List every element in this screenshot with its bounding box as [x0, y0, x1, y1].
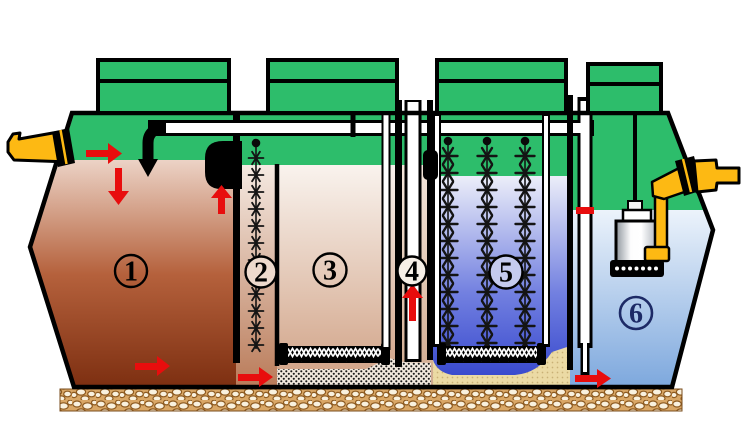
chamber-number-4: 4 — [398, 257, 427, 288]
outlet-nozzle — [694, 160, 739, 192]
pipe-coupling-wall-4-5 — [423, 150, 438, 180]
gravel-foundation — [60, 389, 682, 411]
inlet-pipe — [8, 128, 75, 167]
chamber-6-label: 6 — [629, 299, 643, 330]
access-lid-4 — [588, 64, 661, 113]
water-level-mark — [576, 207, 594, 214]
access-lid-2 — [268, 60, 397, 113]
chamber-number-5: 5 — [490, 256, 523, 289]
access-lids — [98, 60, 661, 113]
transfer-elbow-chamber-1-2 — [205, 141, 242, 189]
access-lid-3 — [437, 60, 566, 113]
diffuser-chamber-3 — [279, 343, 390, 365]
diffuser-chamber-5 — [437, 343, 546, 365]
chamber-3-label: 3 — [323, 256, 337, 287]
treatment-tank-diagram: 1 2 3 4 5 6 — [0, 0, 747, 439]
access-lid-1 — [98, 60, 229, 113]
chamber-1-label: 1 — [124, 257, 138, 288]
chamber-2-label: 2 — [254, 258, 268, 289]
chamber-number-2: 2 — [246, 257, 277, 289]
chamber-5-label: 5 — [499, 258, 513, 289]
outlet-pump-elbow — [645, 247, 669, 261]
chamber-4-label: 4 — [405, 257, 419, 288]
